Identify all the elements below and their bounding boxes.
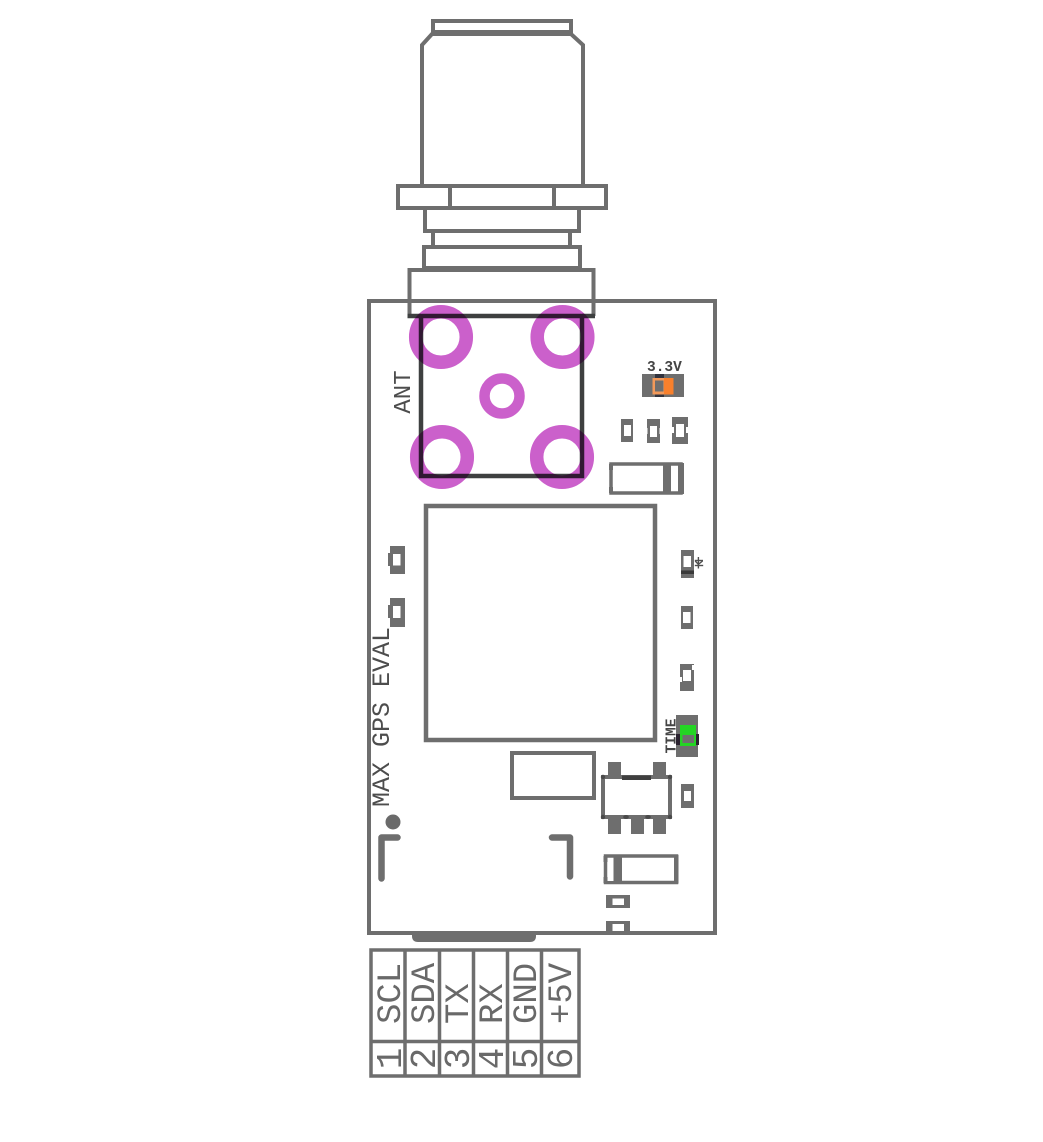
svg-text:SCL: SCL bbox=[373, 963, 411, 1024]
svg-text:TIME: TIME bbox=[665, 718, 681, 753]
svg-text:+5V: +5V bbox=[544, 962, 582, 1024]
svg-text:ANT: ANT bbox=[391, 370, 418, 413]
svg-text:6: 6 bbox=[542, 1048, 583, 1070]
svg-text:MAX GPS EVAL: MAX GPS EVAL bbox=[368, 627, 397, 807]
svg-text:TX: TX bbox=[441, 983, 479, 1024]
svg-text:RX: RX bbox=[475, 983, 513, 1024]
svg-text:GND: GND bbox=[509, 963, 547, 1024]
svg-text:3.3V: 3.3V bbox=[647, 360, 682, 376]
svg-text:SDA: SDA bbox=[407, 962, 445, 1024]
